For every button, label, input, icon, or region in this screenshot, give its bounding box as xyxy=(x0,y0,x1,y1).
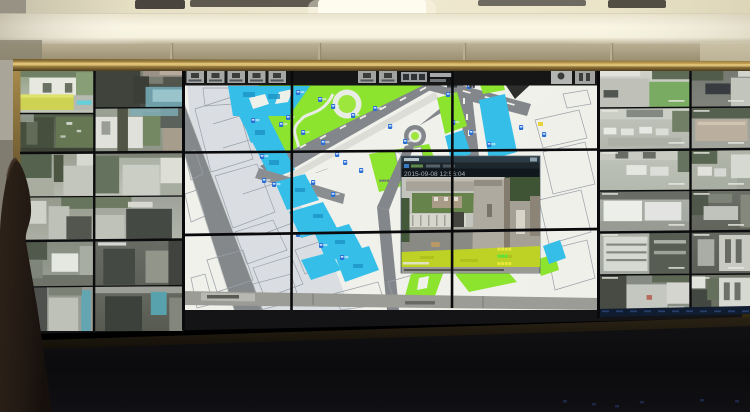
svg-text:■■■■: ■■■■ xyxy=(497,247,512,253)
svg-text:■■■■: ■■■■ xyxy=(379,178,390,183)
svg-text:■■■: ■■■ xyxy=(497,254,508,260)
svg-text:2015-09-08 12:56:04: 2015-09-08 12:56:04 xyxy=(404,171,466,178)
svg-text:■■■■: ■■■■ xyxy=(497,262,512,268)
